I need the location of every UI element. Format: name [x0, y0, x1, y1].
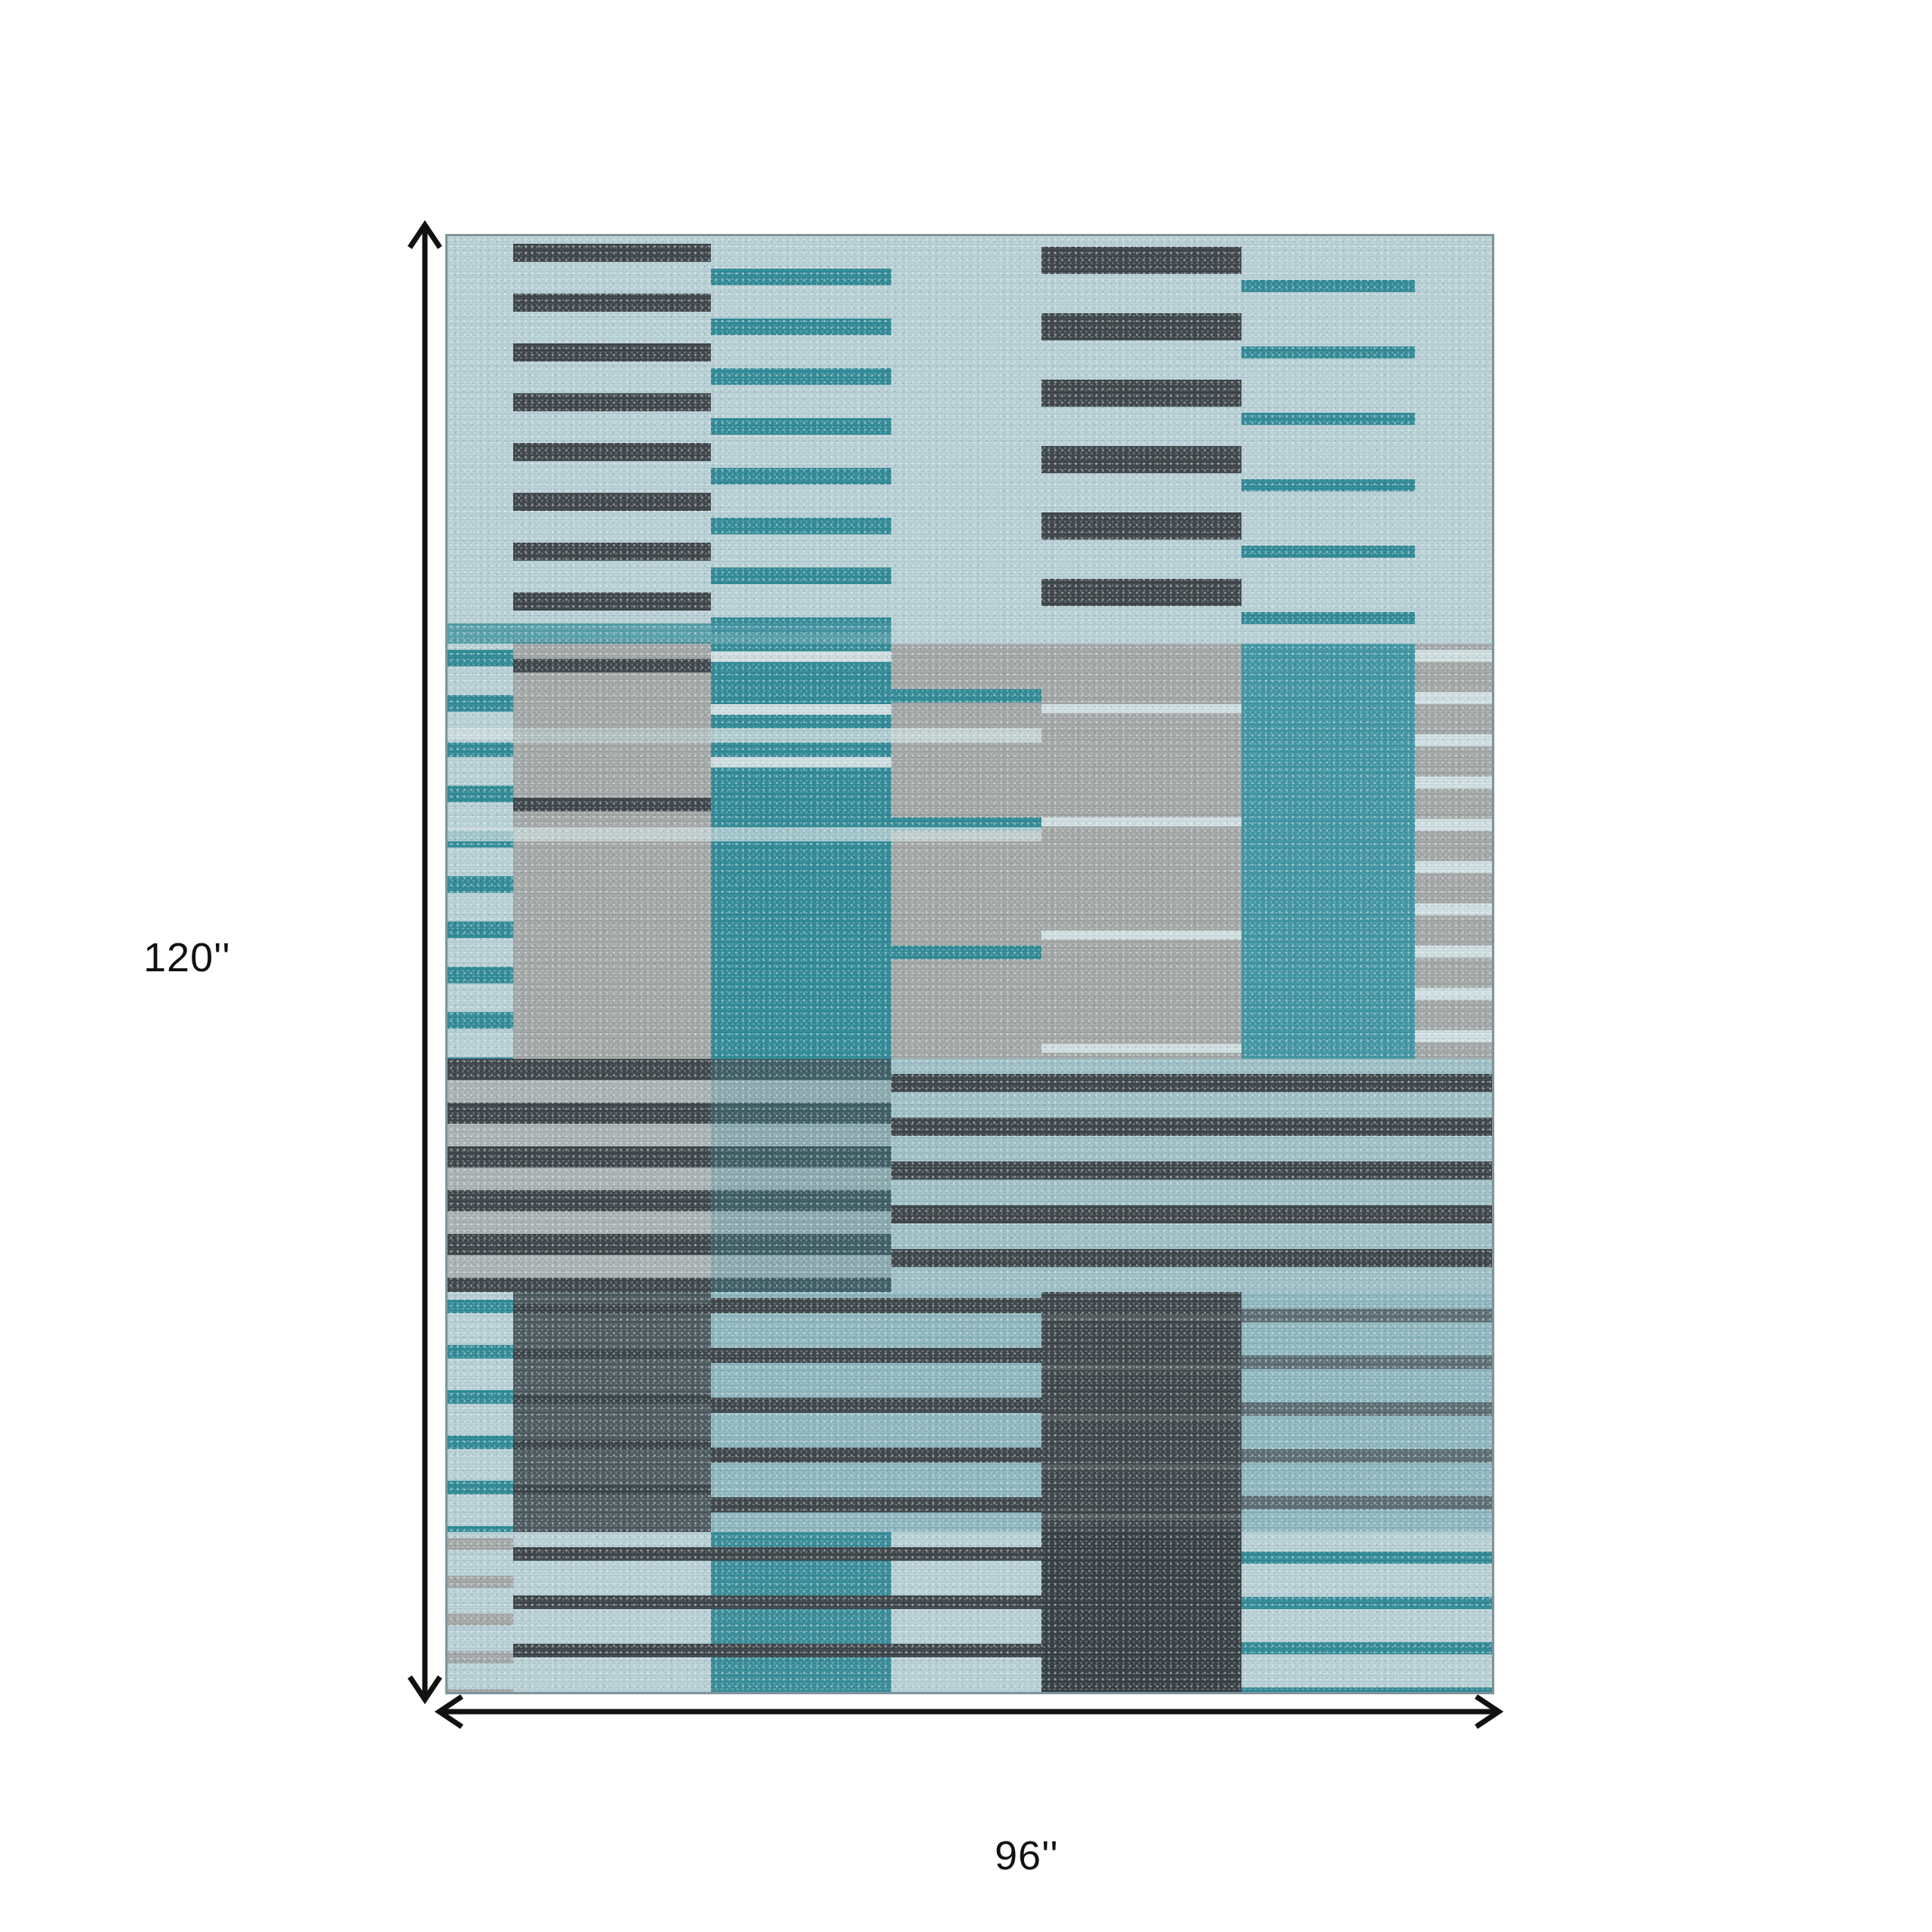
- rug-patch: [1041, 1532, 1241, 1692]
- rug-patch: [891, 1532, 1041, 1692]
- rug-patch: [711, 1292, 1042, 1532]
- rug-patch: [513, 1532, 711, 1692]
- rug-patch: [891, 236, 1041, 644]
- rug-patch: [448, 1532, 513, 1692]
- rug-patch: [1415, 236, 1492, 644]
- rug-patch: [891, 1059, 1492, 1292]
- rug-patch: [513, 1292, 711, 1532]
- rug-patch: [448, 623, 891, 645]
- rug-patch: [448, 1292, 513, 1532]
- rug-patch: [711, 1059, 891, 1292]
- rug-patch: [448, 728, 1041, 743]
- rug-patch: [1041, 236, 1241, 644]
- rug-patch: [1241, 1292, 1492, 1532]
- rug-patch: [711, 236, 891, 644]
- rug-patch: [513, 826, 711, 1059]
- width-double-arrow-icon: [435, 1694, 1503, 1729]
- rug-patch: [448, 644, 513, 1059]
- rug-patch: [711, 775, 891, 1059]
- rug-patch: [1241, 236, 1415, 644]
- width-dimension-label: 96'': [995, 1832, 1059, 1879]
- rug-patch: [1415, 644, 1492, 1059]
- rug-patch: [448, 827, 1041, 841]
- rug-patch: [513, 236, 711, 644]
- rug-patch: [1041, 644, 1241, 1059]
- rug-patch: [448, 236, 513, 644]
- rug-patch: [891, 644, 1041, 1059]
- height-double-arrow-icon: [408, 220, 442, 1704]
- rug-patch: [711, 1532, 891, 1692]
- rug-pattern: [448, 236, 1492, 1692]
- rug-patch: [1041, 1292, 1241, 1532]
- product-dimension-diagram: 120'' 96'': [0, 0, 1932, 1932]
- rug-patch: [1241, 1532, 1492, 1692]
- height-dimension-label: 120'': [143, 934, 231, 981]
- rug-patch: [1241, 644, 1415, 1059]
- rug-patch: [711, 644, 891, 775]
- rug-image: [445, 234, 1494, 1694]
